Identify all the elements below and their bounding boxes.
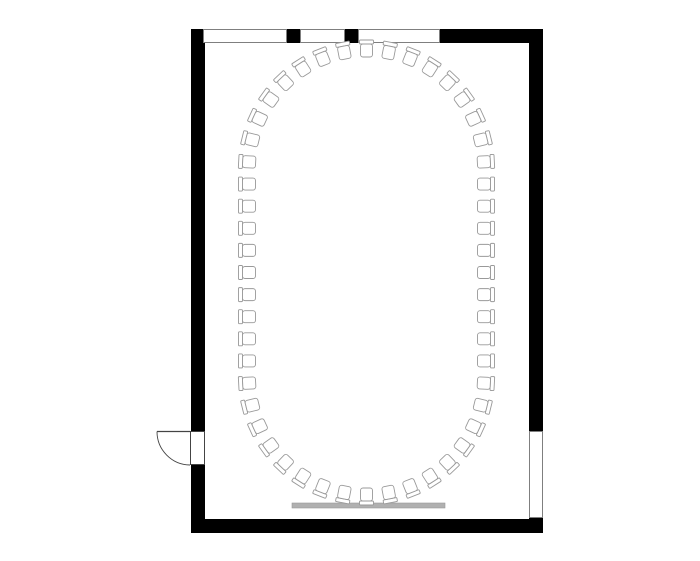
chair — [381, 41, 398, 60]
chair — [241, 397, 261, 415]
chair — [335, 485, 352, 504]
chair-backrest — [239, 221, 243, 235]
chair — [438, 70, 460, 92]
chair-seat — [478, 289, 491, 301]
chair — [292, 56, 313, 78]
chair — [453, 436, 475, 457]
chair-seat — [243, 333, 256, 345]
chair — [420, 467, 441, 489]
chair-backrest — [491, 354, 495, 368]
chair-seat — [382, 485, 396, 500]
chair — [292, 467, 313, 489]
chair-seat — [478, 311, 491, 323]
chair — [381, 485, 398, 504]
chair-backrest — [239, 243, 243, 257]
window — [530, 432, 543, 518]
chair — [239, 332, 256, 346]
chair-seat — [243, 244, 256, 256]
chair-backrest — [239, 177, 243, 191]
chair-seat — [478, 244, 491, 256]
chair — [478, 221, 495, 235]
chair — [239, 354, 256, 368]
chair — [360, 488, 374, 505]
chair-seat — [337, 45, 351, 60]
chair — [478, 288, 495, 302]
chair-ring — [238, 40, 494, 505]
chair — [238, 376, 256, 391]
chair-seat — [242, 377, 256, 390]
chair-seat — [361, 488, 373, 501]
chair — [313, 47, 332, 68]
chair-seat — [245, 398, 260, 413]
chair-seat — [478, 222, 491, 234]
floor-plan-svg — [0, 0, 700, 561]
chair-backrest — [491, 266, 495, 280]
chair — [360, 40, 374, 57]
chair-backrest — [239, 310, 243, 324]
chair-seat — [243, 200, 256, 212]
chair — [420, 56, 441, 78]
chair — [478, 354, 495, 368]
chair — [239, 266, 256, 280]
chair — [239, 288, 256, 302]
chair-backrest — [491, 288, 495, 302]
chair-seat — [478, 178, 491, 190]
chair-seat — [478, 333, 491, 345]
chair — [473, 397, 493, 415]
chair — [438, 453, 460, 475]
chair-seat — [478, 267, 491, 279]
chair — [478, 310, 495, 324]
chair — [335, 41, 352, 60]
chair-seat — [337, 485, 351, 500]
chair-backrest — [491, 221, 495, 235]
chair — [477, 376, 495, 391]
chair-seat — [361, 44, 373, 57]
chair — [478, 243, 495, 257]
chair — [464, 108, 485, 128]
chair — [238, 154, 256, 169]
chair-seat — [243, 355, 256, 367]
chair-seat — [473, 398, 488, 413]
chair-seat — [477, 377, 491, 390]
chair — [464, 417, 485, 437]
chair — [401, 477, 420, 498]
window — [301, 30, 345, 43]
chair — [247, 108, 268, 128]
chair-backrest — [239, 199, 243, 213]
chair-seat — [242, 156, 256, 169]
chair — [258, 436, 280, 457]
chair-seat — [243, 178, 256, 190]
chair — [478, 177, 495, 191]
chair — [239, 199, 256, 213]
chair — [478, 332, 495, 346]
chair-backrest — [239, 354, 243, 368]
chair — [273, 70, 295, 92]
wall-bottom — [191, 519, 543, 533]
door-opening — [191, 432, 205, 465]
chair-seat — [243, 222, 256, 234]
chair — [273, 453, 295, 475]
chair-seat — [473, 132, 488, 147]
door-swing-arc — [157, 432, 190, 466]
chair — [401, 47, 420, 68]
chair — [239, 243, 256, 257]
chair — [453, 88, 475, 109]
chair — [239, 177, 256, 191]
chair-seat — [478, 355, 491, 367]
floor-plan — [0, 0, 700, 561]
chair — [258, 88, 280, 109]
chair — [478, 199, 495, 213]
chair-backrest — [239, 288, 243, 302]
chair-backrest — [491, 243, 495, 257]
chair — [239, 310, 256, 324]
chair-seat — [477, 156, 491, 169]
chair-seat — [382, 45, 396, 60]
chair — [247, 417, 268, 437]
chair — [313, 477, 332, 498]
window — [204, 30, 287, 43]
chair-backrest — [239, 332, 243, 346]
chair-backrest — [491, 310, 495, 324]
chair-backrest — [491, 177, 495, 191]
chair-seat — [243, 311, 256, 323]
chair — [239, 221, 256, 235]
chair-seat — [245, 132, 260, 147]
chair — [478, 266, 495, 280]
chair — [477, 154, 495, 169]
chair-seat — [243, 267, 256, 279]
chair-backrest — [491, 199, 495, 213]
chair-backrest — [360, 40, 374, 44]
chair-backrest — [491, 332, 495, 346]
chair — [473, 131, 493, 149]
chair-backrest — [239, 266, 243, 280]
chair — [241, 131, 261, 149]
chair-backrest — [360, 501, 374, 505]
chair-seat — [243, 289, 256, 301]
chair-seat — [478, 200, 491, 212]
